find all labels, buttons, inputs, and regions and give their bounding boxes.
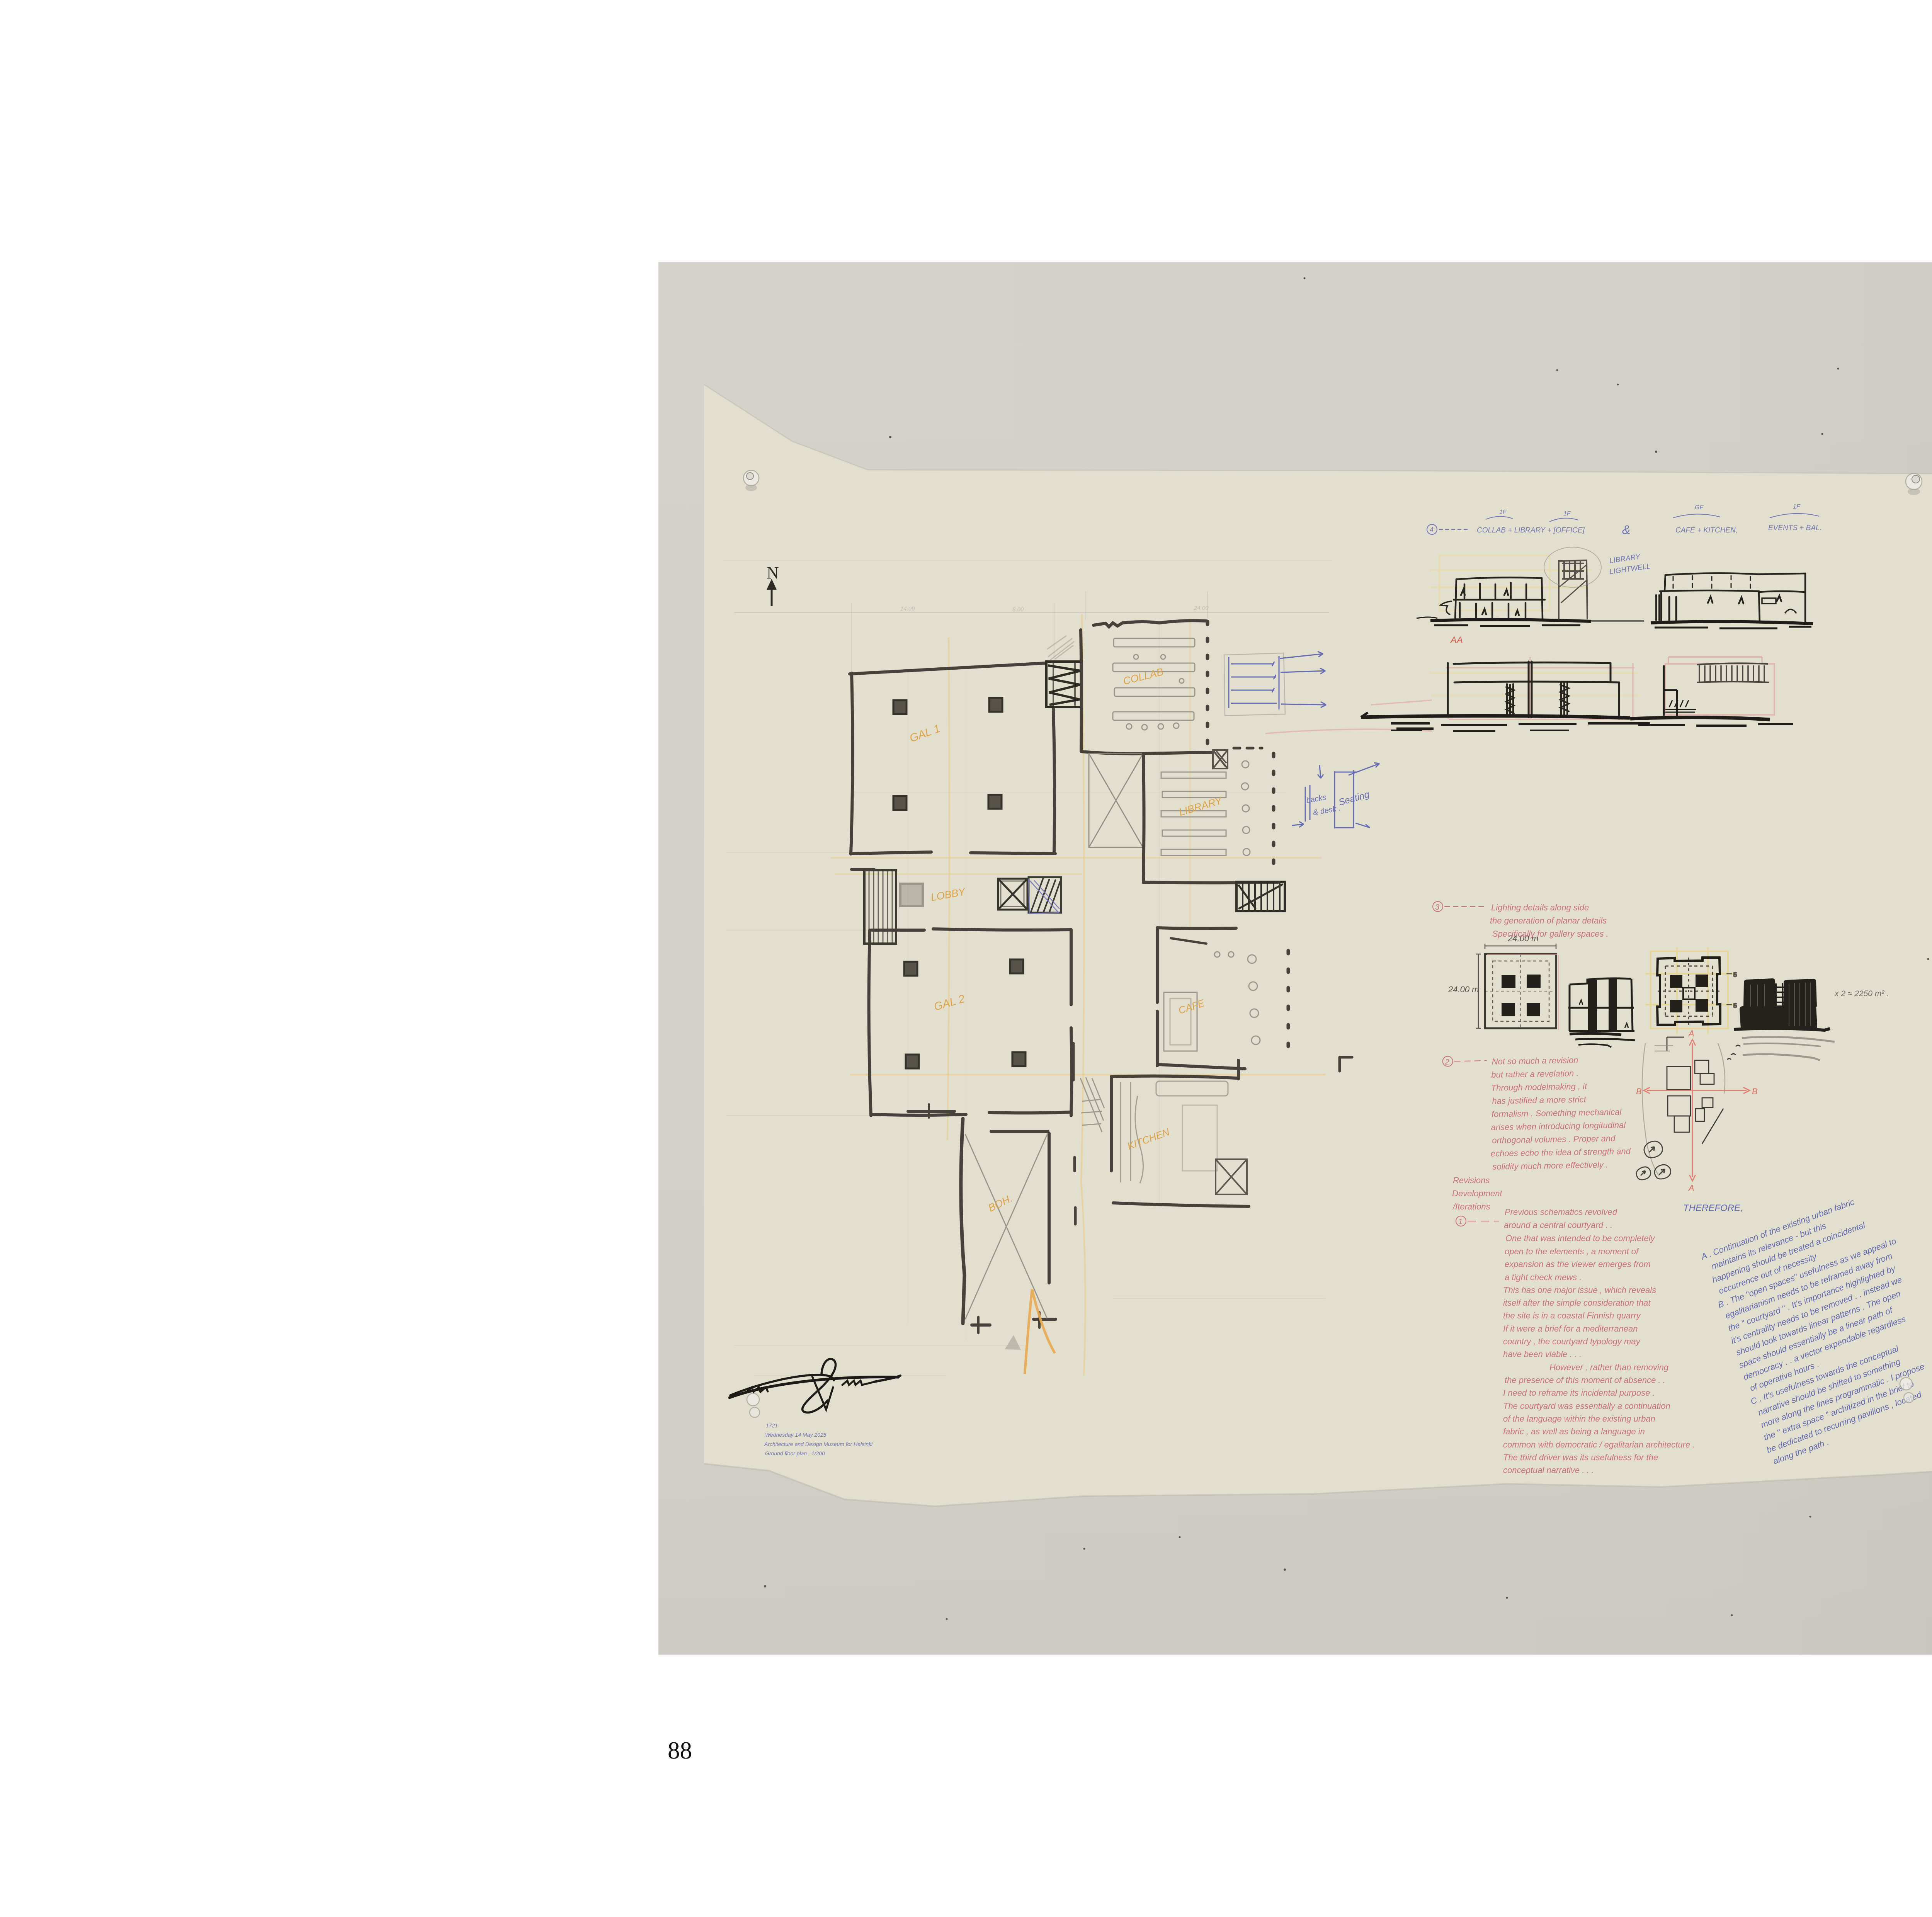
svg-text:14.00: 14.00 bbox=[900, 606, 915, 612]
svg-text:5: 5 bbox=[1733, 972, 1737, 978]
svg-text:&: & bbox=[1622, 523, 1630, 537]
svg-text:1F: 1F bbox=[1563, 510, 1571, 517]
svg-text:x 2 ≈ 2250 m² .: x 2 ≈ 2250 m² . bbox=[1834, 989, 1889, 998]
svg-text:B: B bbox=[1636, 1087, 1642, 1096]
svg-text:Architecture and Design Museum: Architecture and Design Museum for Helsi… bbox=[764, 1441, 873, 1447]
svg-text:Ground floor plan , 1/200: Ground floor plan , 1/200 bbox=[765, 1450, 825, 1456]
svg-text:3: 3 bbox=[1435, 903, 1439, 912]
svg-text:B: B bbox=[1752, 1087, 1758, 1096]
svg-text:AA: AA bbox=[1450, 635, 1463, 645]
svg-text:has justified a more strict: has justified a more strict bbox=[1492, 1094, 1587, 1106]
svg-text:EVENTS + BAL.: EVENTS + BAL. bbox=[1768, 524, 1822, 532]
svg-text:8.00: 8.00 bbox=[1012, 606, 1024, 613]
svg-text:GF: GF bbox=[1695, 504, 1704, 511]
svg-text:Lighting details along side: Lighting details along side bbox=[1491, 903, 1589, 912]
svg-text:1F: 1F bbox=[1499, 509, 1507, 515]
svg-text:fabric , as well as being a la: fabric , as well as being a language in bbox=[1503, 1427, 1645, 1436]
svg-text:1: 1 bbox=[1458, 1218, 1463, 1226]
svg-text:THEREFORE,: THEREFORE, bbox=[1683, 1203, 1743, 1213]
svg-text:expansion as the viewer emerge: expansion as the viewer emerges from bbox=[1505, 1259, 1651, 1269]
svg-text:of the language within the exi: of the language within the existing urba… bbox=[1503, 1414, 1655, 1424]
svg-text:COLLAB + LIBRARY + [OFFICE]: COLLAB + LIBRARY + [OFFICE] bbox=[1477, 526, 1585, 534]
svg-text:1721: 1721 bbox=[766, 1422, 778, 1429]
svg-text:24.00 m: 24.00 m bbox=[1448, 985, 1479, 994]
svg-text:/Iterations: /Iterations bbox=[1452, 1202, 1490, 1211]
svg-text:24.00: 24.00 bbox=[1194, 605, 1209, 611]
svg-text:Development: Development bbox=[1452, 1189, 1503, 1198]
svg-text:I need to reframe its incident: I need to reframe its incidental purpose… bbox=[1503, 1388, 1655, 1398]
svg-text:A: A bbox=[1688, 1029, 1694, 1038]
svg-text:One that was intended to be co: One that was intended to be completely bbox=[1505, 1233, 1655, 1243]
svg-text:Wednesday 14 May 2025: Wednesday 14 May 2025 bbox=[765, 1432, 827, 1438]
svg-text:This has one major issue , whi: This has one major issue , which reveals bbox=[1503, 1285, 1656, 1295]
svg-text:A: A bbox=[1688, 1183, 1694, 1193]
svg-text:country , the courtyard typolo: country , the courtyard typology may bbox=[1503, 1337, 1641, 1346]
svg-text:2: 2 bbox=[1444, 1058, 1449, 1067]
svg-text:the site is in a coastal Finni: the site is in a coastal Finnish quarry bbox=[1503, 1311, 1641, 1320]
svg-text:The courtyard was essentially: The courtyard was essentially a continua… bbox=[1503, 1401, 1670, 1411]
svg-text:common with democratic / egali: common with democratic / egalitarian arc… bbox=[1503, 1440, 1695, 1449]
svg-text:open to the elements , a momen: open to the elements , a moment of bbox=[1505, 1247, 1639, 1256]
svg-text:around a central courtyard . .: around a central courtyard . . bbox=[1504, 1220, 1612, 1230]
svg-text:Not so much a revision: Not so much a revision bbox=[1492, 1055, 1578, 1067]
svg-text:CAFE + KITCHEN,: CAFE + KITCHEN, bbox=[1675, 526, 1738, 534]
svg-text:Revisions: Revisions bbox=[1453, 1175, 1490, 1185]
svg-text:1F: 1F bbox=[1793, 503, 1801, 510]
svg-text:If it were a brief for a medit: If it were a brief for a mediterranean bbox=[1503, 1324, 1638, 1334]
svg-text:4: 4 bbox=[1430, 526, 1434, 534]
svg-text:However , rather than removing: However , rather than removing bbox=[1549, 1362, 1669, 1372]
svg-text:the presence of this moment of: the presence of this moment of absence .… bbox=[1505, 1375, 1665, 1385]
svg-text:Through modelmaking , it: Through modelmaking , it bbox=[1491, 1081, 1588, 1092]
svg-text:solidity much more effectively: solidity much more effectively . bbox=[1492, 1160, 1608, 1171]
svg-text:the generation of planar detai: the generation of planar details bbox=[1490, 916, 1607, 925]
svg-text:have been viable . . .: have been viable . . . bbox=[1503, 1349, 1582, 1359]
svg-text:Previous schematics revolved: Previous schematics revolved bbox=[1505, 1207, 1617, 1217]
svg-text:5: 5 bbox=[1733, 1003, 1737, 1009]
svg-text:Specifically for gallery space: Specifically for gallery spaces . bbox=[1492, 929, 1609, 939]
svg-text:but rather a revelation .: but rather a revelation . bbox=[1491, 1068, 1579, 1080]
svg-text:a tight check mews .: a tight check mews . bbox=[1505, 1272, 1582, 1282]
svg-text:N: N bbox=[767, 563, 779, 582]
svg-text:itself after the simple consid: itself after the simple consideration th… bbox=[1503, 1298, 1651, 1308]
svg-text:conceptual narrative . . .: conceptual narrative . . . bbox=[1503, 1465, 1594, 1475]
svg-text:The third driver was its usefu: The third driver was its usefulness for … bbox=[1503, 1453, 1658, 1462]
